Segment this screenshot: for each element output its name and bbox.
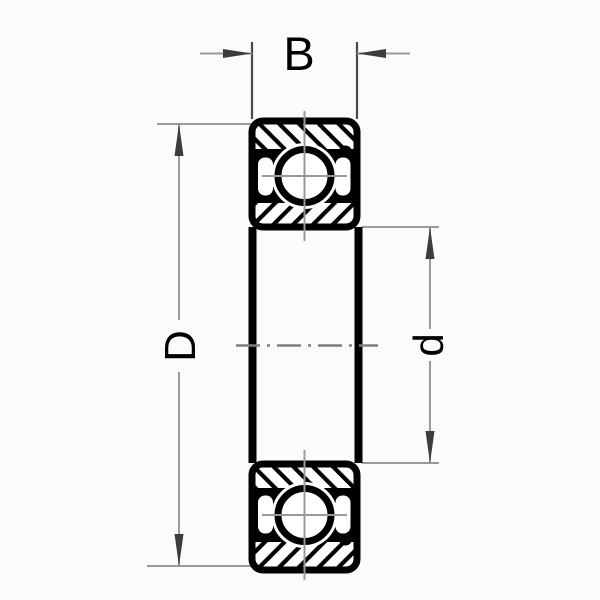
- bearing-drawing-page: B D d: [0, 0, 600, 600]
- bearing-cross-section-diagram: B D d: [0, 0, 600, 600]
- bearing-section-top: [252, 111, 357, 241]
- outer-diameter-label: D: [156, 330, 205, 362]
- bore-diameter-label: d: [405, 333, 452, 356]
- width-dimension-label: B: [283, 27, 314, 80]
- bearing-section-bottom: [252, 450, 357, 580]
